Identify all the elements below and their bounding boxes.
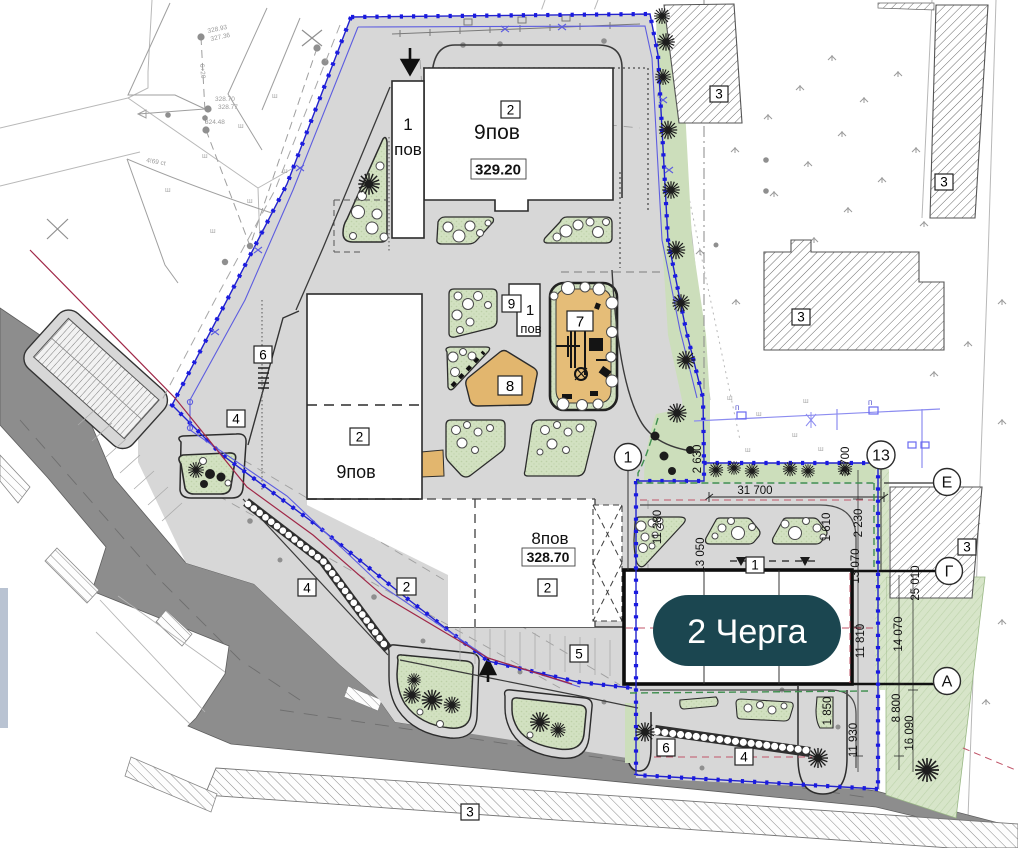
svg-text:3: 3 [797,310,805,325]
svg-text:6+20: 6+20 [198,64,206,80]
svg-text:4: 4 [740,750,748,765]
svg-text:2 Черга: 2 Черга [687,613,806,651]
svg-text:1: 1 [403,115,412,134]
svg-text:5: 5 [575,647,583,662]
svg-text:Г: Г [945,564,954,581]
svg-text:пов: пов [394,140,422,159]
svg-text:ш: ш [202,153,208,160]
svg-text:1: 1 [624,450,633,467]
svg-text:4: 4 [303,581,311,596]
svg-text:ш: ш [210,228,216,235]
svg-text:9пов: 9пов [474,121,520,144]
svg-text:328.70: 328.70 [527,549,570,565]
svg-text:8 800: 8 800 [891,694,903,723]
svg-text:ш: ш [792,432,798,439]
svg-text:2: 2 [356,430,364,445]
svg-text:ш: ш [272,93,278,100]
svg-text:9: 9 [508,297,516,312]
svg-text:14 070: 14 070 [893,616,905,651]
svg-text:11 930: 11 930 [848,723,860,757]
svg-text:328.77: 328.77 [218,104,238,111]
svg-text:Е: Е [942,475,953,492]
svg-text:2: 2 [544,581,552,596]
svg-text:2: 2 [403,580,411,595]
svg-text:2 700: 2 700 [840,447,852,476]
svg-text:13 070: 13 070 [850,548,862,583]
svg-text:1 610: 1 610 [821,513,833,542]
svg-text:13: 13 [872,448,890,465]
svg-text:1: 1 [751,558,759,573]
svg-text:пов: пов [520,321,541,336]
svg-text:8: 8 [506,378,514,395]
svg-text:11 280: 11 280 [652,510,664,544]
svg-text:329.20: 329.20 [475,162,521,179]
svg-text:ш: ш [238,123,244,130]
svg-text:328.70: 328.70 [215,96,235,103]
svg-text:31 700: 31 700 [737,485,772,497]
svg-text:3: 3 [466,805,474,820]
svg-text:16 090: 16 090 [904,715,916,750]
svg-text:п: п [868,398,872,407]
svg-text:ш: ш [745,447,751,454]
svg-text:1: 1 [526,302,534,319]
svg-text:324.48: 324.48 [205,119,225,126]
svg-text:ш: ш [247,198,253,205]
svg-text:п: п [735,403,739,412]
svg-text:3: 3 [940,175,948,190]
svg-text:3: 3 [963,540,971,555]
svg-text:1 850: 1 850 [822,697,834,726]
svg-text:2: 2 [507,103,515,118]
svg-text:А: А [942,674,953,691]
svg-text:25 010: 25 010 [910,565,922,600]
svg-text:ш: ш [803,398,809,405]
svg-text:8пов: 8пов [531,529,568,548]
svg-text:11 810: 11 810 [855,624,867,658]
svg-text:ш: ш [727,395,733,402]
svg-text:2 630: 2 630 [692,445,704,474]
svg-text:6: 6 [259,348,267,363]
svg-text:7: 7 [576,314,584,331]
svg-text:ш: ш [756,411,762,418]
svg-text:3: 3 [715,87,723,102]
svg-text:4: 4 [232,412,240,427]
svg-text:13 050: 13 050 [695,537,707,572]
svg-text:ш: ш [165,187,171,194]
svg-text:2 230: 2 230 [853,509,865,538]
svg-text:ш: ш [818,446,824,453]
svg-text:9пов: 9пов [336,462,375,482]
svg-text:6: 6 [662,741,670,756]
